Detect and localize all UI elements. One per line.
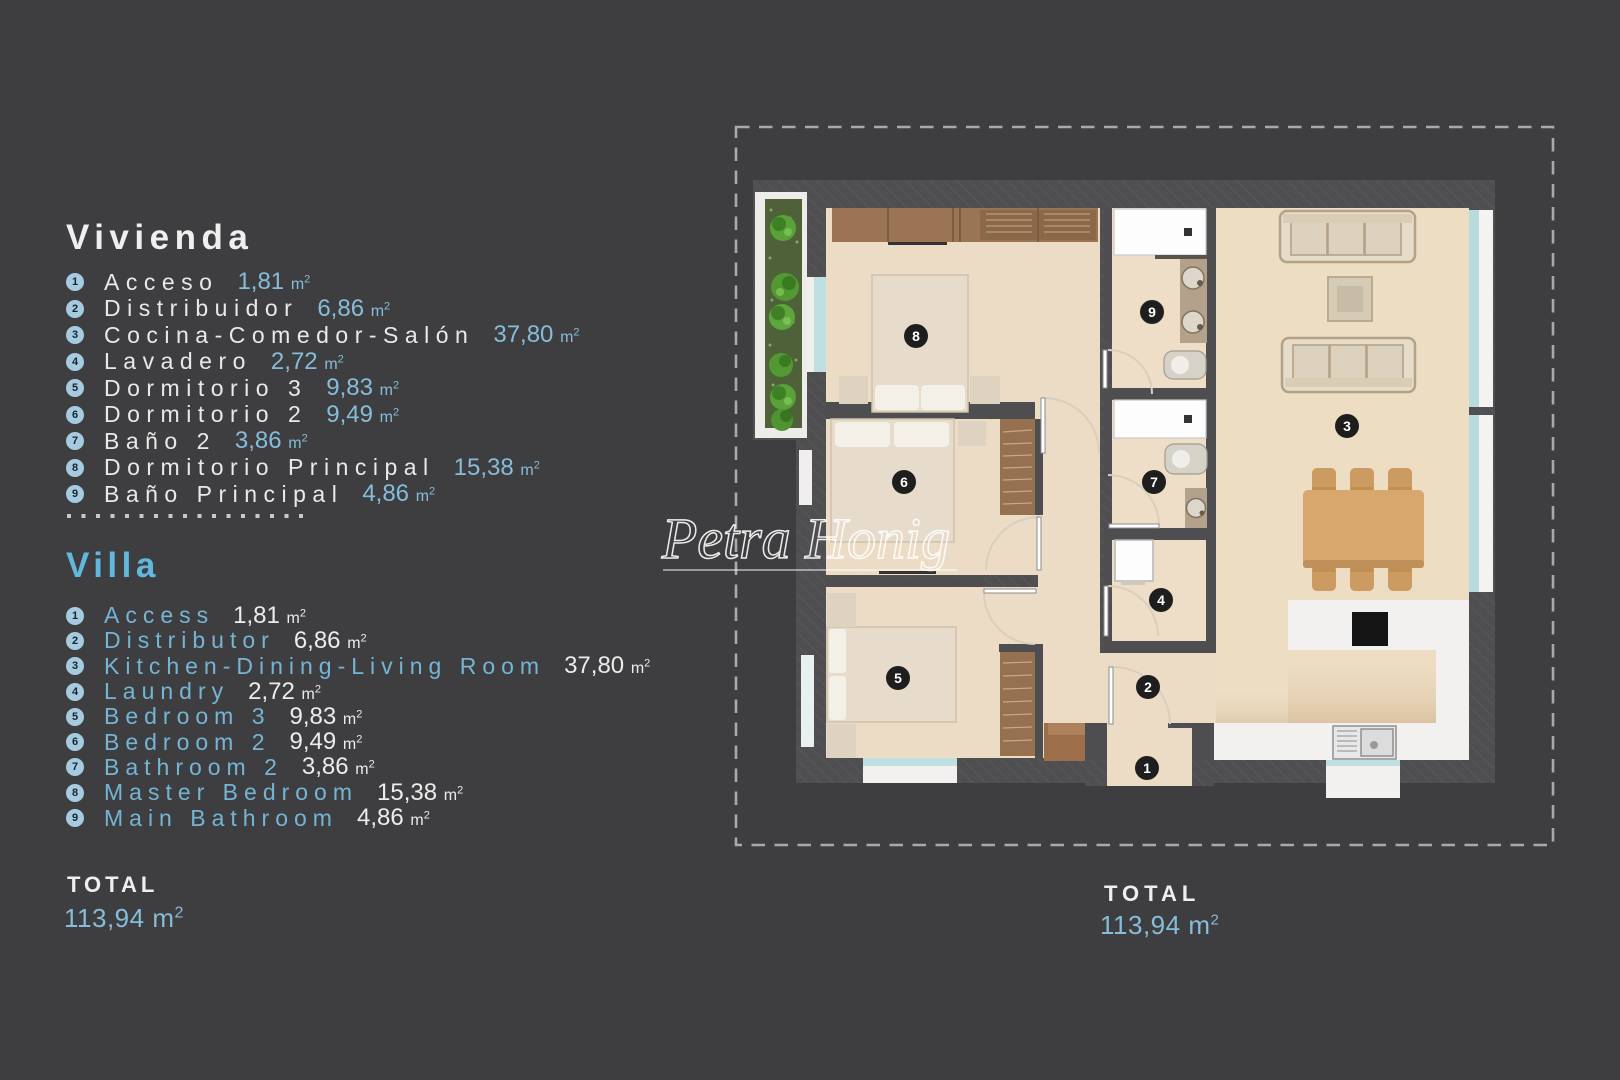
svg-text:6: 6 xyxy=(900,474,908,490)
svg-text:5: 5 xyxy=(894,670,902,686)
svg-text:8: 8 xyxy=(912,328,920,344)
svg-text:1: 1 xyxy=(1143,760,1151,776)
svg-text:4: 4 xyxy=(1157,592,1165,608)
svg-text:2: 2 xyxy=(1144,679,1152,695)
svg-text:7: 7 xyxy=(1150,474,1158,490)
svg-text:Petra Honig: Petra Honig xyxy=(661,506,950,571)
svg-text:3: 3 xyxy=(1343,418,1351,434)
svg-text:9: 9 xyxy=(1148,304,1156,320)
